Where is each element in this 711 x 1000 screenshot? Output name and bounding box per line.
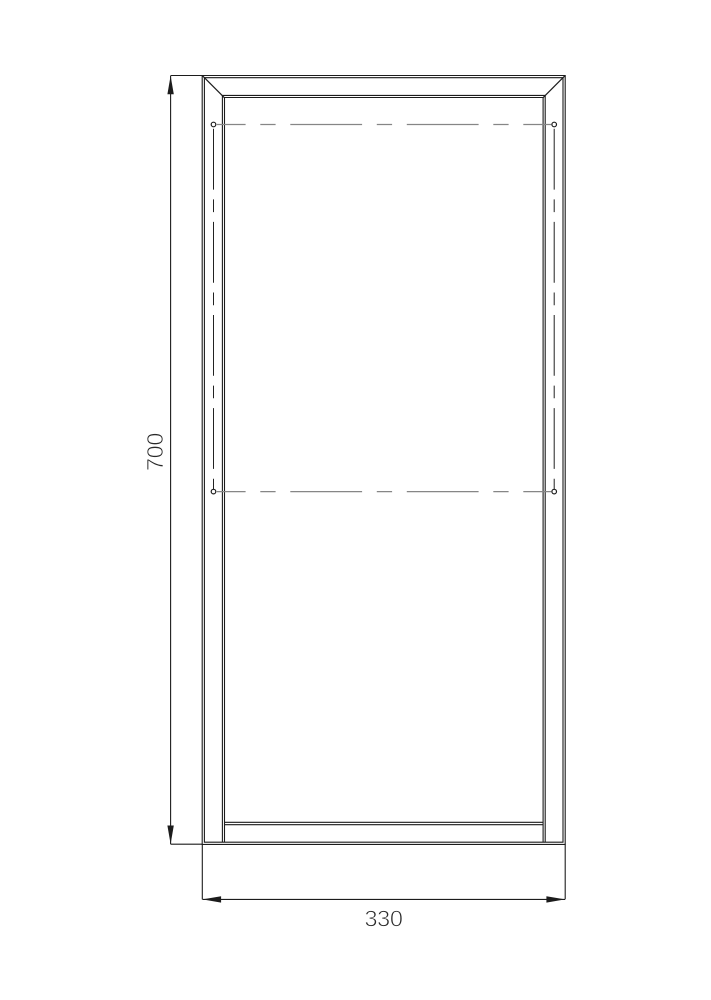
svg-text:330: 330 bbox=[364, 905, 402, 931]
svg-text:700: 700 bbox=[142, 433, 168, 471]
